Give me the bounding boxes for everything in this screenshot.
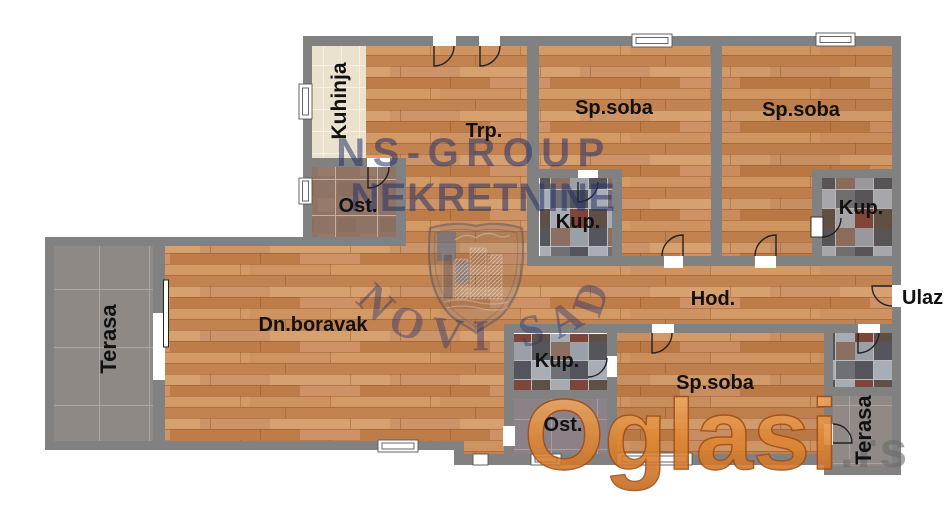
- svg-text:Sp.soba: Sp.soba: [575, 97, 654, 119]
- svg-text:Kup.: Kup.: [535, 350, 579, 372]
- svg-text:Trp.: Trp.: [466, 120, 503, 142]
- svg-text:Kup.: Kup.: [839, 197, 883, 219]
- svg-text:Terasa: Terasa: [851, 395, 876, 465]
- svg-text:Dn.boravak: Dn.boravak: [259, 314, 369, 336]
- svg-text:Kup.: Kup.: [556, 211, 600, 233]
- svg-text:Ost.: Ost.: [339, 195, 378, 217]
- svg-text:Kuhinja: Kuhinja: [328, 62, 351, 139]
- svg-text:Ulaz: Ulaz: [902, 287, 943, 309]
- svg-text:Ost.: Ost.: [544, 414, 583, 436]
- svg-text:Terasa: Terasa: [96, 304, 121, 374]
- svg-text:Sp.soba: Sp.soba: [676, 372, 755, 394]
- svg-text:Sp.soba: Sp.soba: [762, 99, 841, 121]
- svg-text:Hod.: Hod.: [691, 288, 735, 310]
